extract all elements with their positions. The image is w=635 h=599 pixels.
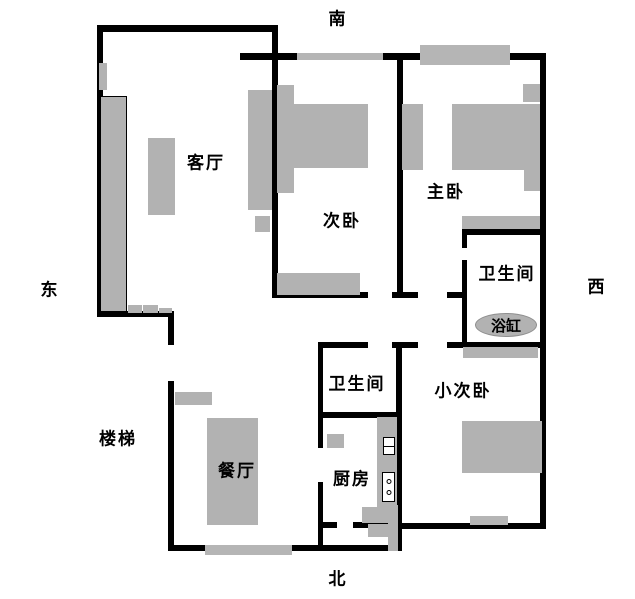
kitchen-fridge: [388, 505, 398, 551]
compass-north: 北: [329, 565, 348, 590]
second-bedroom-nightstand-bottom: [277, 168, 294, 193]
wall-bath2-top: [318, 342, 368, 348]
wall-entry-upper: [168, 311, 174, 345]
second-bedroom-bed: [277, 104, 368, 168]
window-master-bedroom: [420, 45, 510, 65]
master-bedroom-dresser: [462, 216, 540, 229]
compass-east: 东: [41, 276, 60, 301]
wall-second-master-divider: [397, 53, 403, 298]
window-small-bedroom: [470, 516, 508, 525]
wall-bath1-left-lower: [462, 260, 467, 348]
label-dining-room: 餐厅: [218, 457, 256, 482]
bathtub-label: 浴缸: [491, 315, 521, 336]
master-bedroom-nightstand-bottom: [524, 170, 540, 191]
sink-drain-1: [386, 479, 391, 484]
entry-cabinet-2: [143, 305, 158, 313]
dining-sideboard: [175, 392, 212, 405]
kitchen-appliance-block: [368, 524, 388, 537]
living-room-coffee-table: [148, 138, 175, 215]
wall-entry-lower: [168, 381, 174, 551]
entry-cabinet-3: [159, 308, 172, 313]
label-master-bathroom: 卫生间: [479, 260, 536, 285]
wall-lower-mid-b: [392, 342, 418, 348]
wall-bath1-top: [462, 229, 546, 235]
entry-cabinet-1: [128, 305, 142, 313]
wall-top-seg-c: [510, 53, 546, 60]
label-kitchen: 厨房: [333, 465, 371, 490]
stove-icon: [383, 437, 395, 455]
living-room-side-table: [255, 216, 270, 232]
label-middle-bathroom: 卫生间: [329, 370, 386, 395]
master-bedroom-wardrobe: [402, 104, 423, 170]
master-bedroom-bed: [452, 104, 540, 170]
window-second-bedroom: [297, 53, 383, 60]
living-room-wall-fixture: [99, 63, 107, 90]
wall-kitchen-left-lower: [318, 482, 323, 551]
sink-icon: [382, 472, 395, 502]
label-stairs: 楼梯: [99, 425, 137, 450]
window-dining-room: [205, 545, 292, 555]
living-room-sofa: [100, 96, 127, 312]
stove-divider: [384, 446, 394, 447]
label-second-bedroom: 次卧: [323, 207, 361, 232]
label-master-bedroom: 主卧: [427, 178, 465, 203]
wall-mid-b: [392, 292, 418, 298]
label-small-bedroom: 小次卧: [435, 377, 492, 402]
living-room-tv-cabinet: [248, 90, 272, 210]
small-bedroom-dresser: [463, 347, 538, 358]
wall-kitchen-left-upper: [318, 342, 323, 448]
compass-west: 西: [588, 273, 607, 298]
kitchen-table: [327, 434, 344, 448]
wall-top-seg-a: [240, 53, 297, 60]
bathtub: 浴缸: [475, 313, 537, 337]
floor-plan: 浴缸 南 北 东 西 客厅 次卧 主卧 卫生间 小次卧 卫生间 厨房 餐厅 楼梯: [0, 0, 635, 599]
wall-bath1-left-upper: [462, 229, 467, 248]
master-bedroom-nightstand-top: [523, 84, 540, 102]
wall-kitchen-bottom-a: [318, 522, 337, 528]
label-living-room: 客厅: [187, 149, 225, 174]
wall-top-living: [97, 25, 278, 32]
sink-drain-2: [386, 490, 391, 495]
small-bedroom-bed: [462, 421, 542, 473]
kitchen-counter-corner: [362, 507, 377, 523]
second-bedroom-nightstand-top: [277, 85, 294, 104]
second-bedroom-dresser: [277, 273, 360, 295]
compass-south: 南: [329, 5, 348, 30]
